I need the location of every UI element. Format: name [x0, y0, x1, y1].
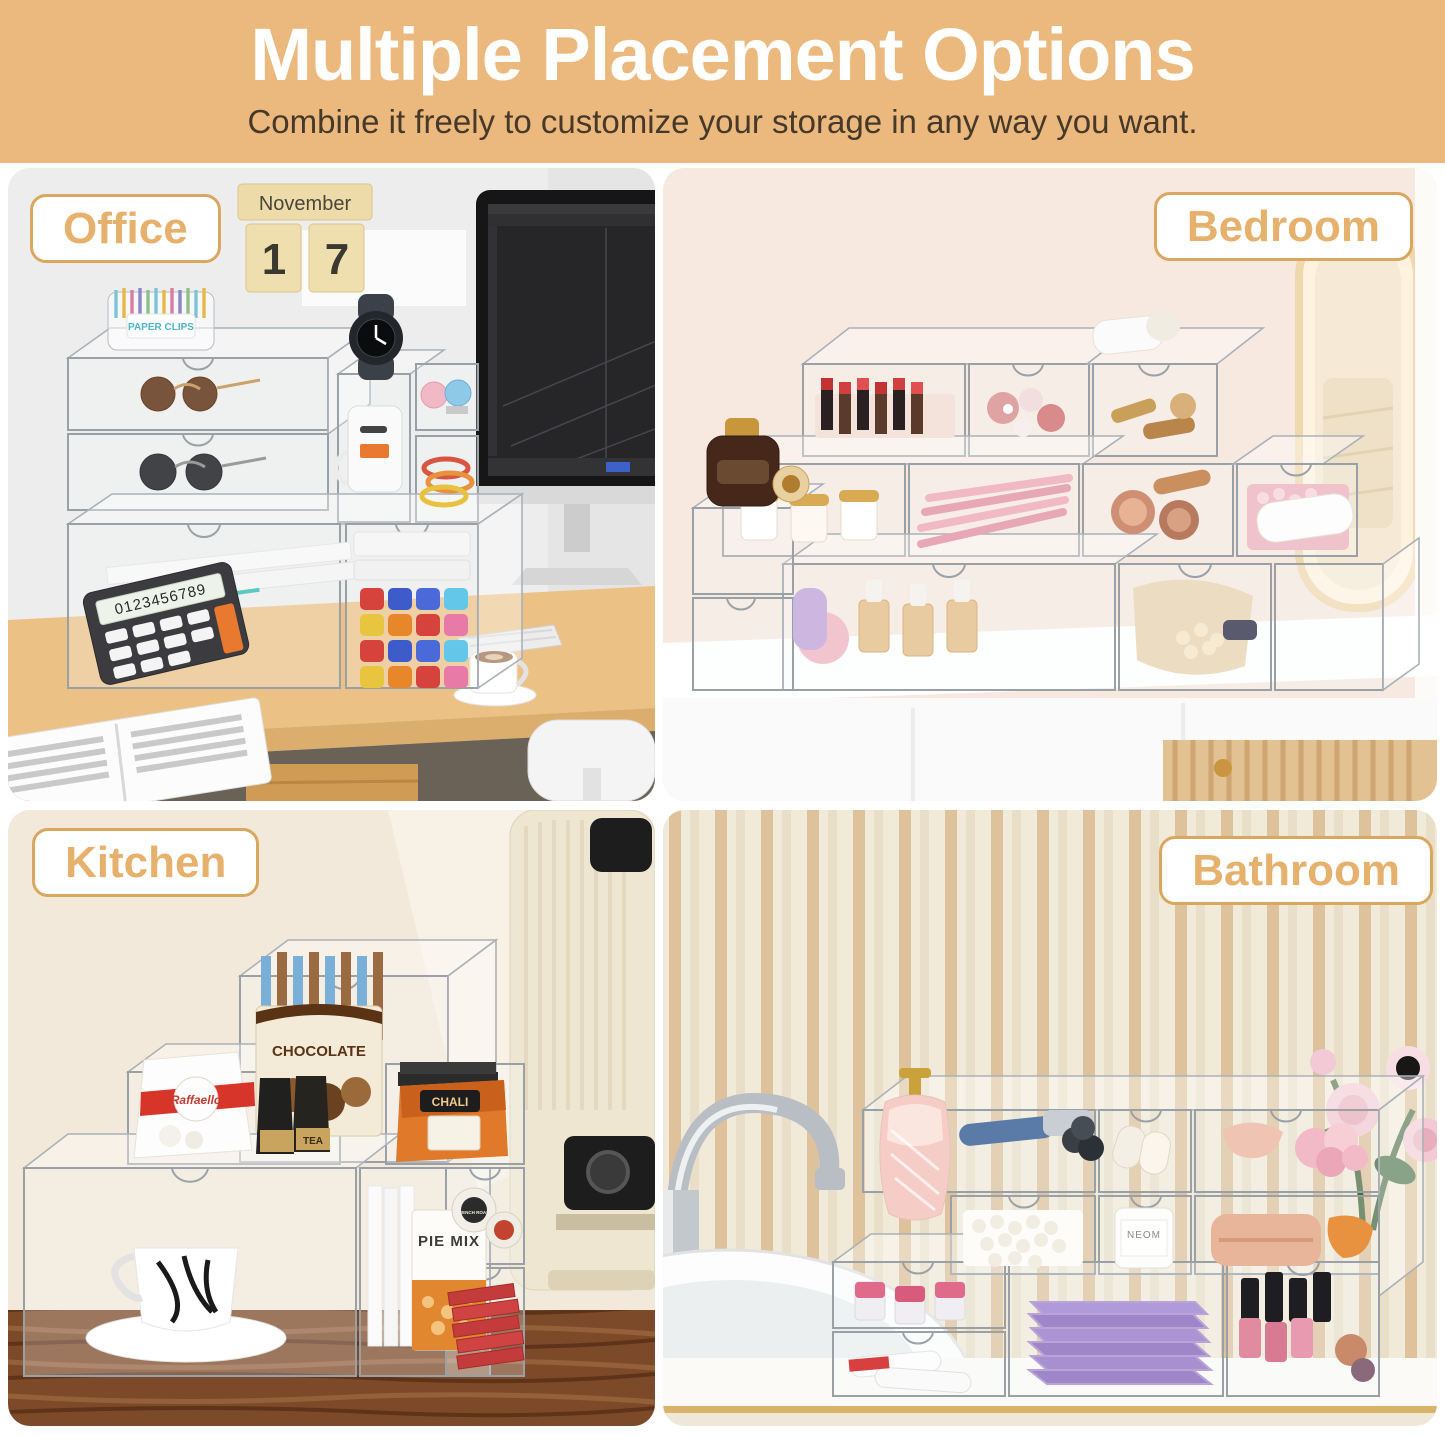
- kitchen-label-badge: Kitchen: [32, 828, 259, 897]
- tea-bag-label: TEA: [303, 1136, 323, 1147]
- bathroom-photo: NEOM: [663, 810, 1437, 1426]
- quadrant-grid: November 1 7: [8, 168, 1437, 1426]
- purple-mask-stack: [1029, 1302, 1211, 1384]
- bathroom-label-text: Bathroom: [1192, 846, 1400, 895]
- clips-cup-label: PAPER CLIPS: [128, 322, 194, 333]
- bedroom-scene: [663, 168, 1437, 801]
- coffee-machine: [510, 810, 655, 1290]
- office-photo: November 1 7: [8, 168, 655, 801]
- chai-drawer: CHALI: [396, 1062, 508, 1162]
- candle-jar: NEOM: [1115, 1208, 1173, 1268]
- office-chair: [528, 720, 655, 801]
- kitchen-scene: CHOCOLATE Raffaello TEA: [8, 810, 655, 1426]
- bedroom-label-text: Bedroom: [1187, 202, 1380, 251]
- coffee-pod-label: FRENCH ROAST: [456, 1210, 492, 1215]
- office-label-badge: Office: [30, 194, 221, 263]
- candle-jar-label: NEOM: [1127, 1230, 1161, 1241]
- bedroom-label-badge: Bedroom: [1154, 192, 1413, 261]
- calendar-month-text: November: [259, 193, 352, 215]
- cotton-swab-drawer: [963, 1210, 1083, 1269]
- calendar-day-left: 1: [262, 235, 286, 284]
- header-banner: Multiple Placement Options Combine it fr…: [0, 0, 1445, 163]
- page-subtitle: Combine it freely to customize your stor…: [0, 103, 1445, 141]
- pearl-pouch-drawer: [1133, 580, 1257, 675]
- kitchen-label-text: Kitchen: [65, 838, 226, 887]
- chocolate-box-label: CHOCOLATE: [272, 1043, 366, 1060]
- marketing-collage: Multiple Placement Options Combine it fr…: [0, 0, 1445, 1436]
- bedroom-photo: Bedroom: [663, 168, 1437, 801]
- calendar-day-right: 7: [325, 235, 349, 284]
- raffaello-box-label: Raffaello: [171, 1093, 221, 1107]
- paper-clips-cup: PAPER CLIPS: [108, 288, 214, 350]
- page-title: Multiple Placement Options: [0, 0, 1445, 97]
- chai-pack-label: CHALI: [432, 1095, 469, 1109]
- office-label-text: Office: [63, 204, 188, 253]
- pink-glasses-drawer: [855, 1282, 965, 1324]
- kitchen-photo: CHOCOLATE Raffaello TEA: [8, 810, 655, 1426]
- bathroom-label-badge: Bathroom: [1159, 836, 1433, 905]
- red-packets-drawer: [448, 1283, 526, 1369]
- pie-mix-label: PIE MIX: [418, 1233, 480, 1250]
